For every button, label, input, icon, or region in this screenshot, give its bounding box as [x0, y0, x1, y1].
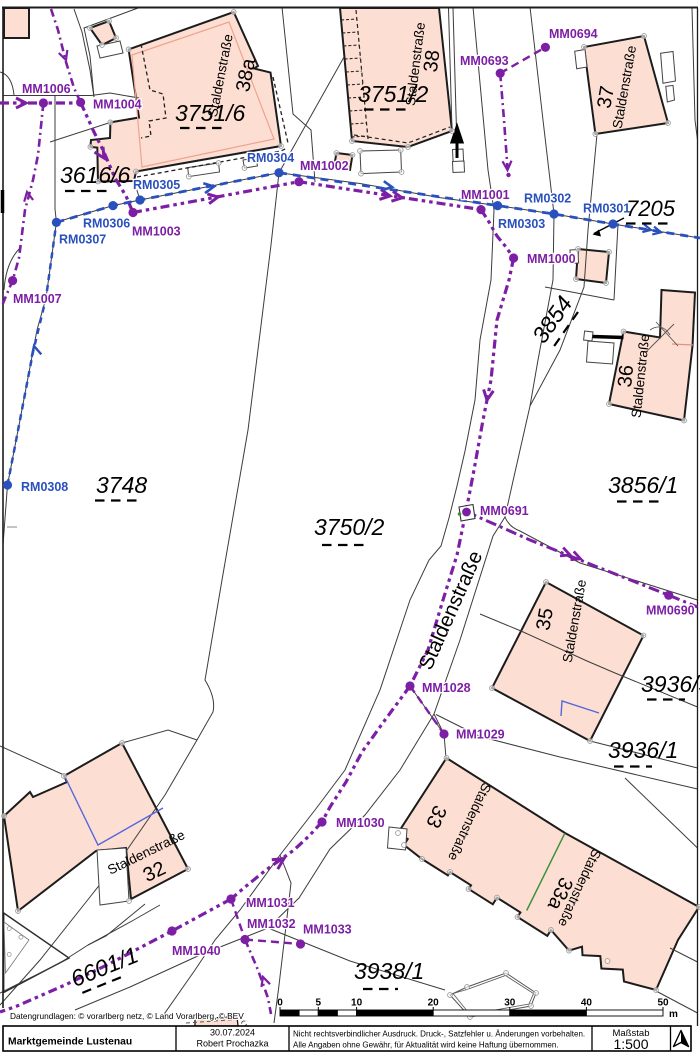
svg-text:MM1007: MM1007 [13, 292, 62, 306]
svg-text:RM0302: RM0302 [524, 192, 571, 206]
svg-text:MM1032: MM1032 [247, 917, 296, 931]
svg-text:0: 0 [277, 998, 283, 1009]
svg-text:5: 5 [316, 998, 322, 1009]
svg-text:MM0690: MM0690 [646, 604, 695, 618]
svg-text:3936/5: 3936/5 [641, 671, 700, 697]
svg-text:Robert Prochazka: Robert Prochazka [196, 1039, 268, 1049]
svg-text:50: 50 [657, 998, 669, 1009]
svg-text:m: m [669, 1009, 678, 1020]
svg-text:RM0304: RM0304 [247, 151, 294, 165]
svg-text:MM1031: MM1031 [246, 896, 295, 910]
svg-text:38: 38 [420, 49, 445, 74]
svg-text:20: 20 [428, 998, 440, 1009]
svg-text:MM0691: MM0691 [480, 504, 529, 518]
svg-text:RM0305: RM0305 [133, 178, 180, 192]
svg-text:Marktgemeinde Lustenau: Marktgemeinde Lustenau [8, 1037, 132, 1048]
svg-text:MM0693: MM0693 [460, 54, 509, 68]
svg-text:MM1004: MM1004 [93, 98, 142, 112]
svg-text:3748: 3748 [96, 472, 147, 498]
svg-text:RM0303: RM0303 [498, 217, 545, 231]
svg-text:MM1002: MM1002 [300, 159, 349, 173]
svg-text:3750/2: 3750/2 [314, 514, 385, 540]
svg-text:30.07.2024: 30.07.2024 [210, 1028, 255, 1038]
svg-text:MM0694: MM0694 [549, 27, 598, 41]
svg-text:MM1030: MM1030 [336, 816, 385, 830]
svg-text:MM1033: MM1033 [303, 923, 352, 937]
svg-text:10: 10 [351, 998, 363, 1009]
svg-text:3936/1: 3936/1 [608, 737, 678, 763]
svg-text:MM1000: MM1000 [527, 252, 576, 266]
svg-text:Datengrundlagen: © vorarlberg: Datengrundlagen: © vorarlberg netz, © La… [10, 1011, 244, 1021]
svg-text:1:500: 1:500 [613, 1036, 648, 1052]
svg-text:3616/6: 3616/6 [60, 162, 131, 188]
svg-text:RM0306: RM0306 [83, 217, 130, 231]
svg-text:RM0307: RM0307 [59, 233, 106, 247]
svg-text:Nicht rechtsverbindlicher Ausd: Nicht rechtsverbindlicher Ausdruck. Druc… [293, 1030, 585, 1039]
svg-text:3856/1: 3856/1 [608, 472, 678, 498]
svg-text:MM1028: MM1028 [422, 681, 471, 695]
svg-text:3938/1: 3938/1 [354, 958, 424, 984]
svg-text:MM1006: MM1006 [22, 82, 71, 96]
svg-text:MM1040: MM1040 [172, 944, 221, 958]
svg-text:MM1003: MM1003 [132, 225, 181, 239]
svg-text:37: 37 [593, 84, 619, 110]
svg-text:30: 30 [504, 998, 516, 1009]
svg-text:MM1001: MM1001 [461, 188, 510, 202]
svg-text:MM1029: MM1029 [456, 728, 505, 742]
svg-text:RM0301: RM0301 [583, 202, 630, 216]
svg-text:36: 36 [614, 364, 638, 388]
svg-text:Alle Angaben ohne Gewähr, für: Alle Angaben ohne Gewähr, für Aktualität… [293, 1041, 559, 1050]
svg-text:7205: 7205 [626, 196, 676, 221]
svg-text:35: 35 [532, 606, 558, 632]
svg-text:40: 40 [581, 998, 593, 1009]
svg-text:RM0308: RM0308 [21, 480, 68, 494]
